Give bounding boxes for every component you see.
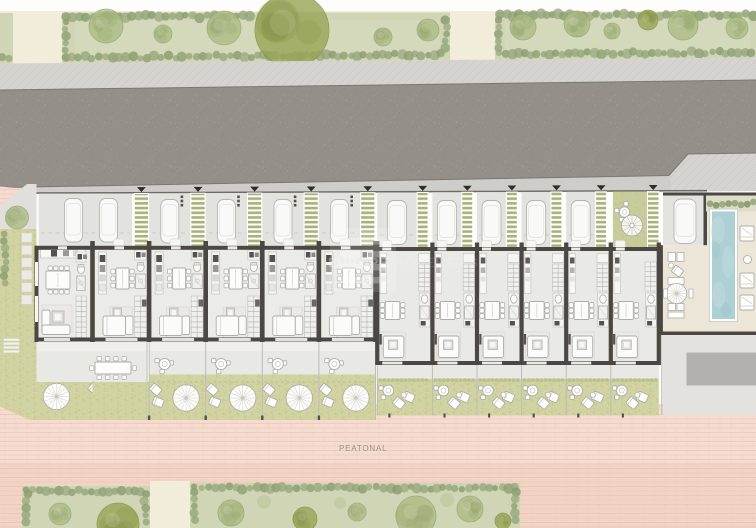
svg-text:PROPERTIES: PROPERTIES [385,255,479,270]
svg-text:PEATONAL: PEATONAL [339,444,387,453]
svg-text:EUROPE: EUROPE [328,255,389,270]
